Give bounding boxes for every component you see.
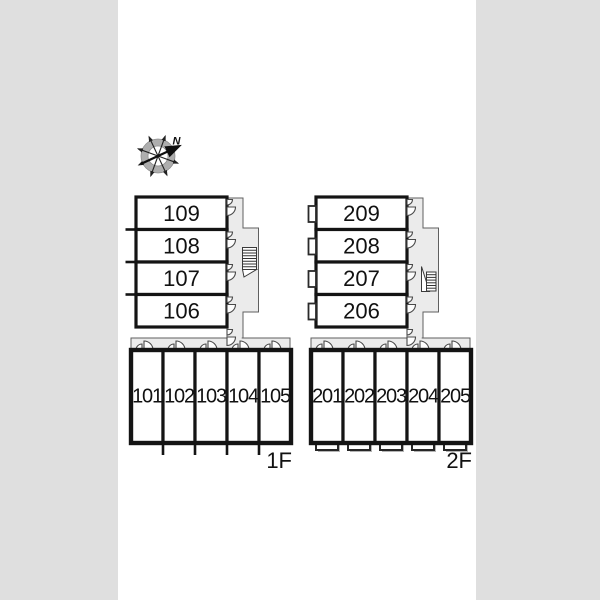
room-label-105: 105 [260,386,291,408]
room-label-108: 108 [163,233,200,258]
room-label-103: 103 [196,386,227,408]
window-marker [309,271,317,287]
room-label-204: 204 [408,386,439,408]
room-label-208: 208 [343,233,380,258]
room-label-207: 207 [343,266,380,291]
room-label-104: 104 [228,386,259,408]
room-label-201: 201 [312,386,343,408]
compass-north-label: N [173,136,182,148]
floorplan-page: N 109108107106101102103104105 2092082072… [0,0,600,600]
floorplan-drawing: N 109108107106101102103104105 2092082072… [0,0,600,600]
window-marker [309,239,317,255]
window-marker [309,206,317,222]
room-label-202: 202 [344,386,375,408]
room-label-106: 106 [163,298,200,323]
room-label-107: 107 [163,266,200,291]
room-label-203: 203 [376,386,407,408]
room-label-206: 206 [343,298,380,323]
floor-label-2f: 2F [446,448,472,473]
room-label-209: 209 [343,201,380,226]
window-marker [309,304,317,320]
room-label-109: 109 [163,201,200,226]
room-label-205: 205 [440,386,471,408]
floor-label-1f: 1F [266,448,292,473]
room-label-102: 102 [164,386,195,408]
room-label-101: 101 [132,386,163,408]
